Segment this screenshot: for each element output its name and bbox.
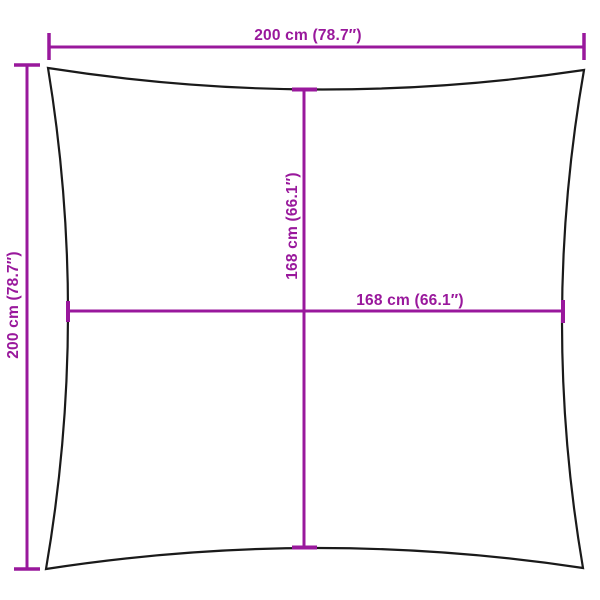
sail-outline (46, 68, 584, 569)
top-dimension: 200 cm (78.7″) (49, 27, 584, 60)
top-dimension-label: 200 cm (78.7″) (254, 27, 362, 44)
inner-horizontal-label: 168 cm (66.1″) (356, 292, 464, 309)
inner-vertical-label: 168 cm (66.1″) (284, 172, 301, 280)
left-dimension-label: 200 cm (78.7″) (5, 251, 22, 359)
left-dimension: 200 cm (78.7″) (5, 65, 40, 569)
inner-vertical-dimension: 168 cm (66.1″) (284, 89, 317, 548)
inner-horizontal-dimension: 168 cm (66.1″) (68, 292, 563, 323)
dimension-diagram: 200 cm (78.7″) 200 cm (78.7″) 168 cm (66… (0, 0, 600, 600)
diagram-canvas: 200 cm (78.7″) 200 cm (78.7″) 168 cm (66… (0, 0, 600, 600)
